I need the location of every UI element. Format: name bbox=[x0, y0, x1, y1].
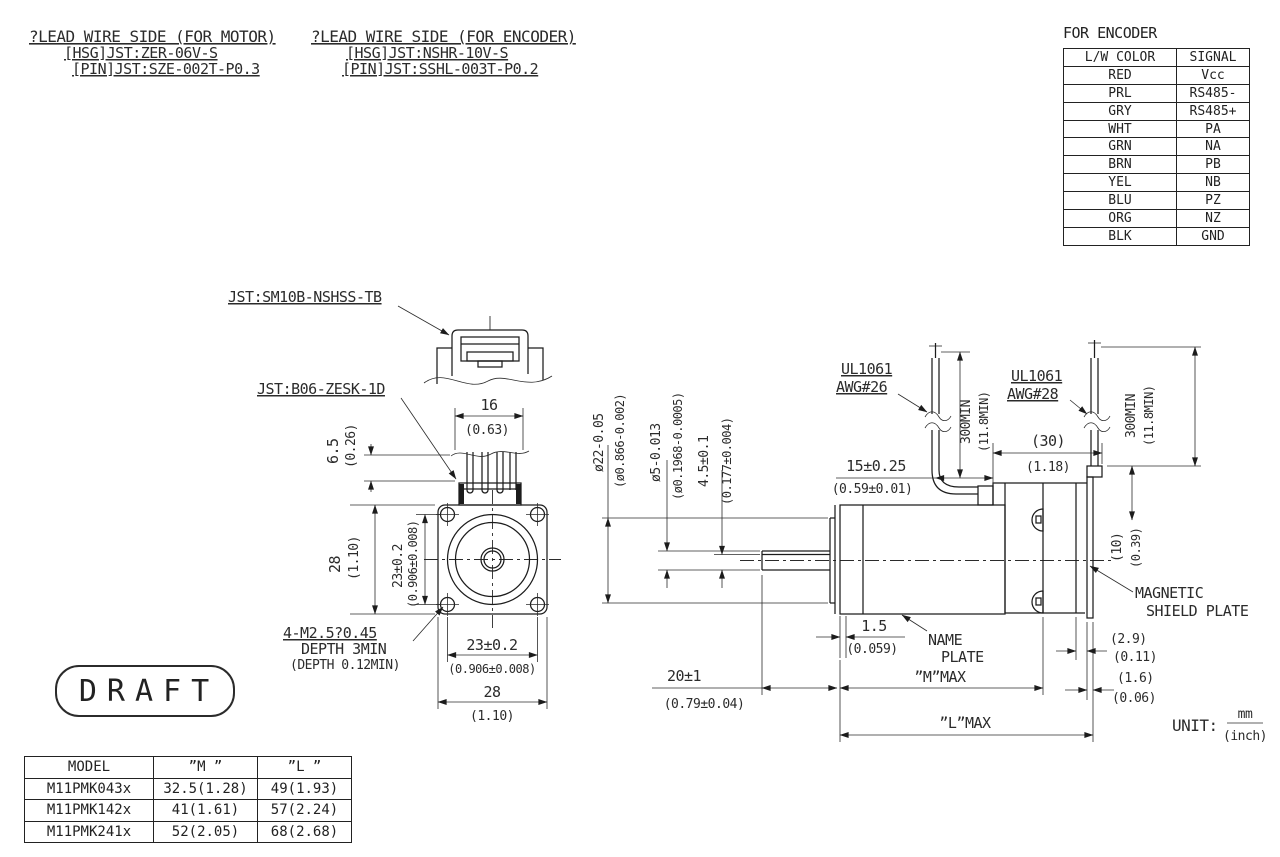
cell-signal: Vcc bbox=[1177, 66, 1250, 84]
cell-signal: PA bbox=[1177, 120, 1250, 138]
lead-wire-motor-note: ?LEAD WIRE SIDE (FOR MOTOR) [HSG]JST:ZER… bbox=[29, 27, 276, 78]
pin-header bbox=[451, 451, 529, 505]
cell-model: M11PMK241x bbox=[25, 821, 154, 843]
model-dimension-table: MODEL ”M ” ”L ” M11PMK043x32.5(1.28)49(1… bbox=[24, 756, 352, 843]
dim-1-6-mm: (1.6) bbox=[1117, 671, 1154, 686]
table-row: BLKGND bbox=[1064, 227, 1250, 245]
encoder-signal-table: L/W COLOR SIGNAL REDVcc PRLRS485- GRYRS4… bbox=[1063, 48, 1250, 246]
connector-motor-label: JST:B06-ZESK-1D bbox=[257, 380, 385, 398]
col-header-signal: SIGNAL bbox=[1177, 49, 1250, 67]
dim-300min-encoder: 300MIN (11.8MIN) bbox=[1101, 347, 1201, 466]
front-view: JST:B06-ZESK-1D bbox=[257, 380, 561, 724]
connector-encoder-label: JST:SM10B-NSHSS-TB bbox=[228, 288, 382, 306]
table-row: BRNPB bbox=[1064, 156, 1250, 174]
cell-color: YEL bbox=[1064, 174, 1177, 192]
unit-label: UNIT: bbox=[1172, 716, 1218, 735]
dim-16: 16 (0.63) bbox=[455, 396, 523, 450]
dim-23-vertical: 23±0.2 (0.906±0.008) bbox=[391, 515, 440, 609]
motor-body bbox=[840, 505, 1005, 614]
encoder-table-title: FOR ENCODER bbox=[1063, 24, 1250, 42]
dim-4-5-mm: 4.5±0.1 bbox=[697, 436, 712, 487]
cell-model: M11PMK043x bbox=[25, 778, 154, 800]
cell-signal: NZ bbox=[1177, 210, 1250, 228]
break-line bbox=[424, 376, 552, 384]
magnetic-shield-plate bbox=[1087, 477, 1093, 618]
cell-color: GRY bbox=[1064, 102, 1177, 120]
table-row: WHTPA bbox=[1064, 120, 1250, 138]
draft-stamp: DRAFT bbox=[55, 665, 235, 717]
cell-color: RED bbox=[1064, 66, 1177, 84]
tap-callout: 4-M2.5?0.45 DEPTH 3MIN (DEPTH 0.12MIN) bbox=[283, 607, 443, 673]
dim-300min-motor-inch: (11.8MIN) bbox=[977, 391, 991, 452]
dim-20-mm: 20±1 bbox=[667, 667, 702, 685]
dim-23h-mm: 23±0.2 bbox=[466, 636, 517, 654]
dim-dia22: ø22-0.05 (ø0.866-0.002) bbox=[592, 394, 828, 603]
cell-m: 52(2.05) bbox=[154, 821, 258, 843]
encoder-wire-exit bbox=[1087, 466, 1102, 477]
dim-2-9-inch: (0.11) bbox=[1113, 650, 1157, 665]
cell-m: 32.5(1.28) bbox=[154, 778, 258, 800]
dim-28h-mm: 28 bbox=[483, 683, 501, 701]
side-view: UL1061 AWG#26 UL1061 AWG#28 ø22-0.05 (ø0… bbox=[592, 340, 1249, 742]
table-row: L/W COLOR SIGNAL bbox=[1064, 49, 1250, 67]
m-max-label: ”M”MAX bbox=[914, 668, 966, 686]
cell-m: 41(1.61) bbox=[154, 800, 258, 822]
l-max-label: ”L”MAX bbox=[939, 714, 991, 732]
cell-model: M11PMK142x bbox=[25, 800, 154, 822]
name-plate-callout: NAME PLATE bbox=[902, 615, 984, 666]
dim-1-6: (1.6) (0.06) bbox=[1065, 671, 1156, 706]
dim-300min-encoder-inch: (11.8MIN) bbox=[1142, 385, 1156, 446]
unit-note: UNIT: mm (inch) bbox=[1172, 707, 1267, 744]
cell-color: BRN bbox=[1064, 156, 1177, 174]
dim-l-max: ”L”MAX bbox=[840, 622, 1093, 742]
table-row: YELNB bbox=[1064, 174, 1250, 192]
table-row: MODEL ”M ” ”L ” bbox=[25, 757, 352, 779]
cell-signal: NB bbox=[1177, 174, 1250, 192]
cell-color: PRL bbox=[1064, 84, 1177, 102]
dim-6-5: 6.5 (0.26) bbox=[324, 424, 455, 492]
col-header-color: L/W COLOR bbox=[1064, 49, 1177, 67]
dim-20-inch: (0.79±0.04) bbox=[664, 697, 745, 712]
dim-6-5-mm: 6.5 bbox=[324, 438, 342, 464]
dim-23v-mm: 23±0.2 bbox=[391, 544, 406, 588]
dim-30-inch: (1.18) bbox=[1026, 460, 1070, 475]
cell-color: ORG bbox=[1064, 210, 1177, 228]
dim-dia5-mm: ø5-0.013 bbox=[649, 423, 664, 482]
table-row: M11PMK241x52(2.05)68(2.68) bbox=[25, 821, 352, 843]
tap-line3: (DEPTH 0.12MIN) bbox=[290, 658, 400, 673]
dim-dia5: ø5-0.013 (ø0.1968-0.0005) bbox=[649, 392, 760, 588]
magnetic-label-line2: SHIELD PLATE bbox=[1146, 602, 1249, 620]
cell-color: BLU bbox=[1064, 192, 1177, 210]
ul1061-awg28-line1: UL1061 bbox=[1011, 367, 1063, 385]
cell-color: GRN bbox=[1064, 138, 1177, 156]
dim-1-6-inch: (0.06) bbox=[1112, 691, 1156, 706]
encoder-lead-wire bbox=[1084, 340, 1110, 466]
dim-10: (10) (0.39) bbox=[1110, 466, 1143, 568]
encoder-signal-block: FOR ENCODER L/W COLOR SIGNAL REDVcc PRLR… bbox=[1063, 24, 1250, 246]
encoder-connector-detail: JST:SM10B-NSHSS-TB bbox=[228, 288, 552, 384]
dim-30-mm: (30) bbox=[1031, 432, 1065, 450]
dim-1-5-mm: 1.5 bbox=[861, 617, 887, 635]
table-row: M11PMK043x32.5(1.28)49(1.93) bbox=[25, 778, 352, 800]
cell-signal: PZ bbox=[1177, 192, 1250, 210]
dim-2-9-mm: (2.9) bbox=[1110, 632, 1147, 647]
lead-motor-line3: [PIN]JST:SZE-002T-P0.3 bbox=[72, 60, 260, 78]
dim-30: (30) (1.18) bbox=[993, 432, 1102, 475]
table-row: GRYRS485+ bbox=[1064, 102, 1250, 120]
dim-4-5-inch: (0.177±0.004) bbox=[720, 418, 734, 505]
cell-signal: PB bbox=[1177, 156, 1250, 174]
dim-16-mm: 16 bbox=[480, 396, 498, 414]
dim-10-inch: (0.39) bbox=[1129, 528, 1143, 568]
dim-16-inch: (0.63) bbox=[465, 423, 509, 438]
nameplate-line1: NAME bbox=[928, 631, 963, 649]
cell-signal: RS485+ bbox=[1177, 102, 1250, 120]
dim-15-mm: 15±0.25 bbox=[846, 457, 906, 475]
wire-spec-awg26: UL1061 AWG#26 bbox=[836, 360, 927, 412]
ul1061-awg26-line1: UL1061 bbox=[841, 360, 893, 378]
drawing-sheet: ?LEAD WIRE SIDE (FOR MOTOR) [HSG]JST:ZER… bbox=[0, 0, 1280, 857]
dim-dia22-inch: (ø0.866-0.002) bbox=[613, 394, 627, 488]
table-row: ORGNZ bbox=[1064, 210, 1250, 228]
dim-300min-motor: 300MIN (11.8MIN) bbox=[941, 352, 991, 478]
ul1061-awg26-line2: AWG#26 bbox=[836, 378, 888, 396]
break-line bbox=[451, 451, 529, 456]
unit-mm: mm bbox=[1238, 707, 1253, 722]
table-row: GRNNA bbox=[1064, 138, 1250, 156]
dim-300min-motor-mm: 300MIN bbox=[959, 400, 974, 444]
lead-wire-encoder-note: ?LEAD WIRE SIDE (FOR ENCODER) [HSG]JST:N… bbox=[311, 27, 576, 78]
dim-dia22-mm: ø22-0.05 bbox=[592, 413, 607, 472]
cell-l: 68(2.68) bbox=[258, 821, 352, 843]
dim-28v-inch: (1.10) bbox=[347, 536, 362, 580]
cell-l: 49(1.93) bbox=[258, 778, 352, 800]
wire-spec-awg28: UL1061 AWG#28 bbox=[1007, 367, 1087, 414]
lead-encoder-line3: [PIN]JST:SSHL-003T-P0.2 bbox=[342, 60, 538, 78]
dim-28h-inch: (1.10) bbox=[470, 709, 514, 724]
col-header-l: ”L ” bbox=[258, 757, 352, 779]
dim-1-5: 1.5 (0.059) bbox=[816, 616, 905, 658]
table-row: PRLRS485- bbox=[1064, 84, 1250, 102]
tap-line2: DEPTH 3MIN bbox=[301, 640, 387, 658]
magnetic-shield-callout: MAGNETIC SHIELD PLATE bbox=[1090, 566, 1249, 620]
cell-signal: NA bbox=[1177, 138, 1250, 156]
table-row: M11PMK142x41(1.61)57(2.24) bbox=[25, 800, 352, 822]
dim-23v-inch: (0.906±0.008) bbox=[406, 521, 420, 608]
cell-color: WHT bbox=[1064, 120, 1177, 138]
dim-1-5-inch: (0.059) bbox=[846, 642, 897, 657]
dim-15-inch: (0.59±0.01) bbox=[832, 482, 913, 497]
encoder-housing bbox=[978, 466, 1102, 618]
dim-6-5-inch: (0.26) bbox=[344, 424, 359, 468]
dim-300min-encoder-mm: 300MIN bbox=[1124, 394, 1139, 438]
dim-4-5-flat: 4.5±0.1 (0.177±0.004) bbox=[697, 418, 760, 588]
dim-15: 15±0.25 (0.59±0.01) bbox=[832, 443, 993, 497]
dim-28v-mm: 28 bbox=[326, 555, 344, 573]
unit-inch: (inch) bbox=[1223, 729, 1267, 744]
cell-color: BLK bbox=[1064, 227, 1177, 245]
dim-23h-inch: (0.906±0.008) bbox=[448, 662, 535, 676]
col-header-model: MODEL bbox=[25, 757, 154, 779]
ul1061-awg28-line2: AWG#28 bbox=[1007, 385, 1059, 403]
cell-signal: RS485- bbox=[1177, 84, 1250, 102]
nameplate-line2: PLATE bbox=[941, 648, 984, 666]
motor-wire-exit bbox=[978, 486, 993, 505]
col-header-m: ”M ” bbox=[154, 757, 258, 779]
cell-signal: GND bbox=[1177, 227, 1250, 245]
table-row: REDVcc bbox=[1064, 66, 1250, 84]
table-row: BLUPZ bbox=[1064, 192, 1250, 210]
pilot-boss bbox=[830, 505, 835, 614]
dim-2-9: (2.9) (0.11) bbox=[1056, 617, 1157, 700]
cell-l: 57(2.24) bbox=[258, 800, 352, 822]
dim-dia5-inch: (ø0.1968-0.0005) bbox=[671, 392, 685, 500]
dim-10-mm: (10) bbox=[1110, 533, 1125, 562]
dim-20: 20±1 (0.79±0.04) bbox=[652, 575, 837, 712]
magnetic-label-line1: MAGNETIC bbox=[1135, 584, 1203, 602]
